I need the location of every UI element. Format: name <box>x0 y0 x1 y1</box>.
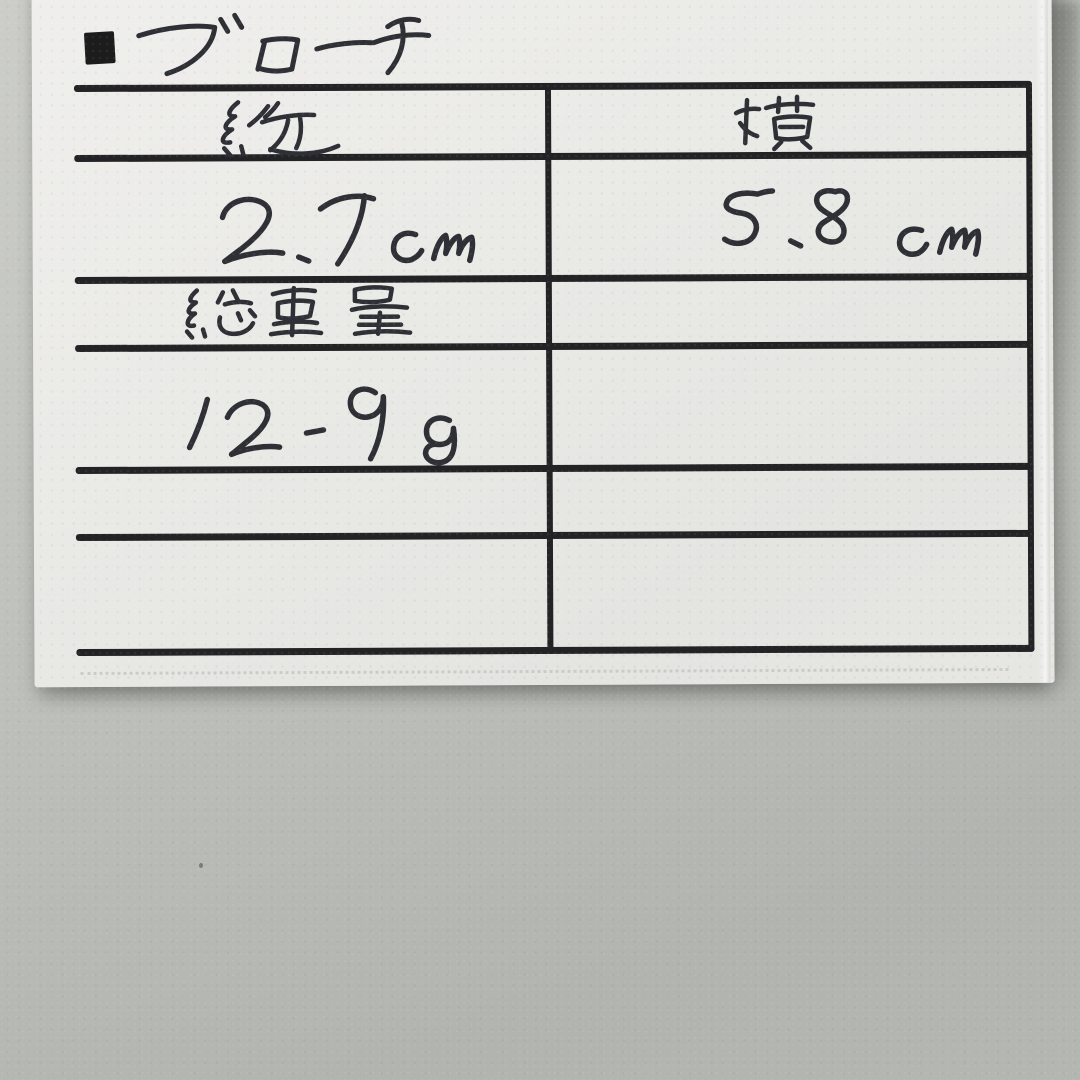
handwritten-weight-value: 12.9 g <box>178 366 498 465</box>
table-line-under-weight-label <box>75 341 1033 352</box>
handwriting-12-9g-strokes <box>178 366 498 465</box>
card-perforation-edge <box>81 668 1009 675</box>
card-edge-highlight <box>1035 0 1050 683</box>
handwriting-2-7cm-strokes <box>192 184 492 267</box>
table-line-top <box>74 81 1032 92</box>
handwritten-weight-label: 総重量 <box>178 283 420 342</box>
handwritten-header-height: 縦 <box>212 96 342 159</box>
table-line-under-values <box>75 273 1033 284</box>
photo-scene: ブローチ 縦 横 2. <box>0 0 1080 1080</box>
handwritten-header-width: 横 <box>732 91 818 151</box>
table-divider-center <box>545 84 553 654</box>
title-bullet-square <box>84 31 116 65</box>
handwritten-title: ブローチ <box>127 10 437 77</box>
wall-speck <box>199 863 203 868</box>
table-line-bottom <box>76 645 1034 656</box>
table-line-empty-row <box>76 530 1034 541</box>
handwriting-brooch-strokes <box>127 10 437 77</box>
note-card: ブローチ 縦 横 2. <box>31 0 1054 687</box>
handwritten-value-height: 2.7 cm <box>192 184 492 267</box>
handwriting-soujuryou-strokes <box>178 283 420 342</box>
handwriting-yoko-strokes <box>732 91 818 151</box>
handwriting-tate-strokes <box>212 96 342 159</box>
handwriting-5-8cm-strokes <box>694 176 1004 263</box>
table-border-right <box>1026 82 1034 652</box>
handwritten-value-width: 5.8 cm <box>694 176 1004 263</box>
